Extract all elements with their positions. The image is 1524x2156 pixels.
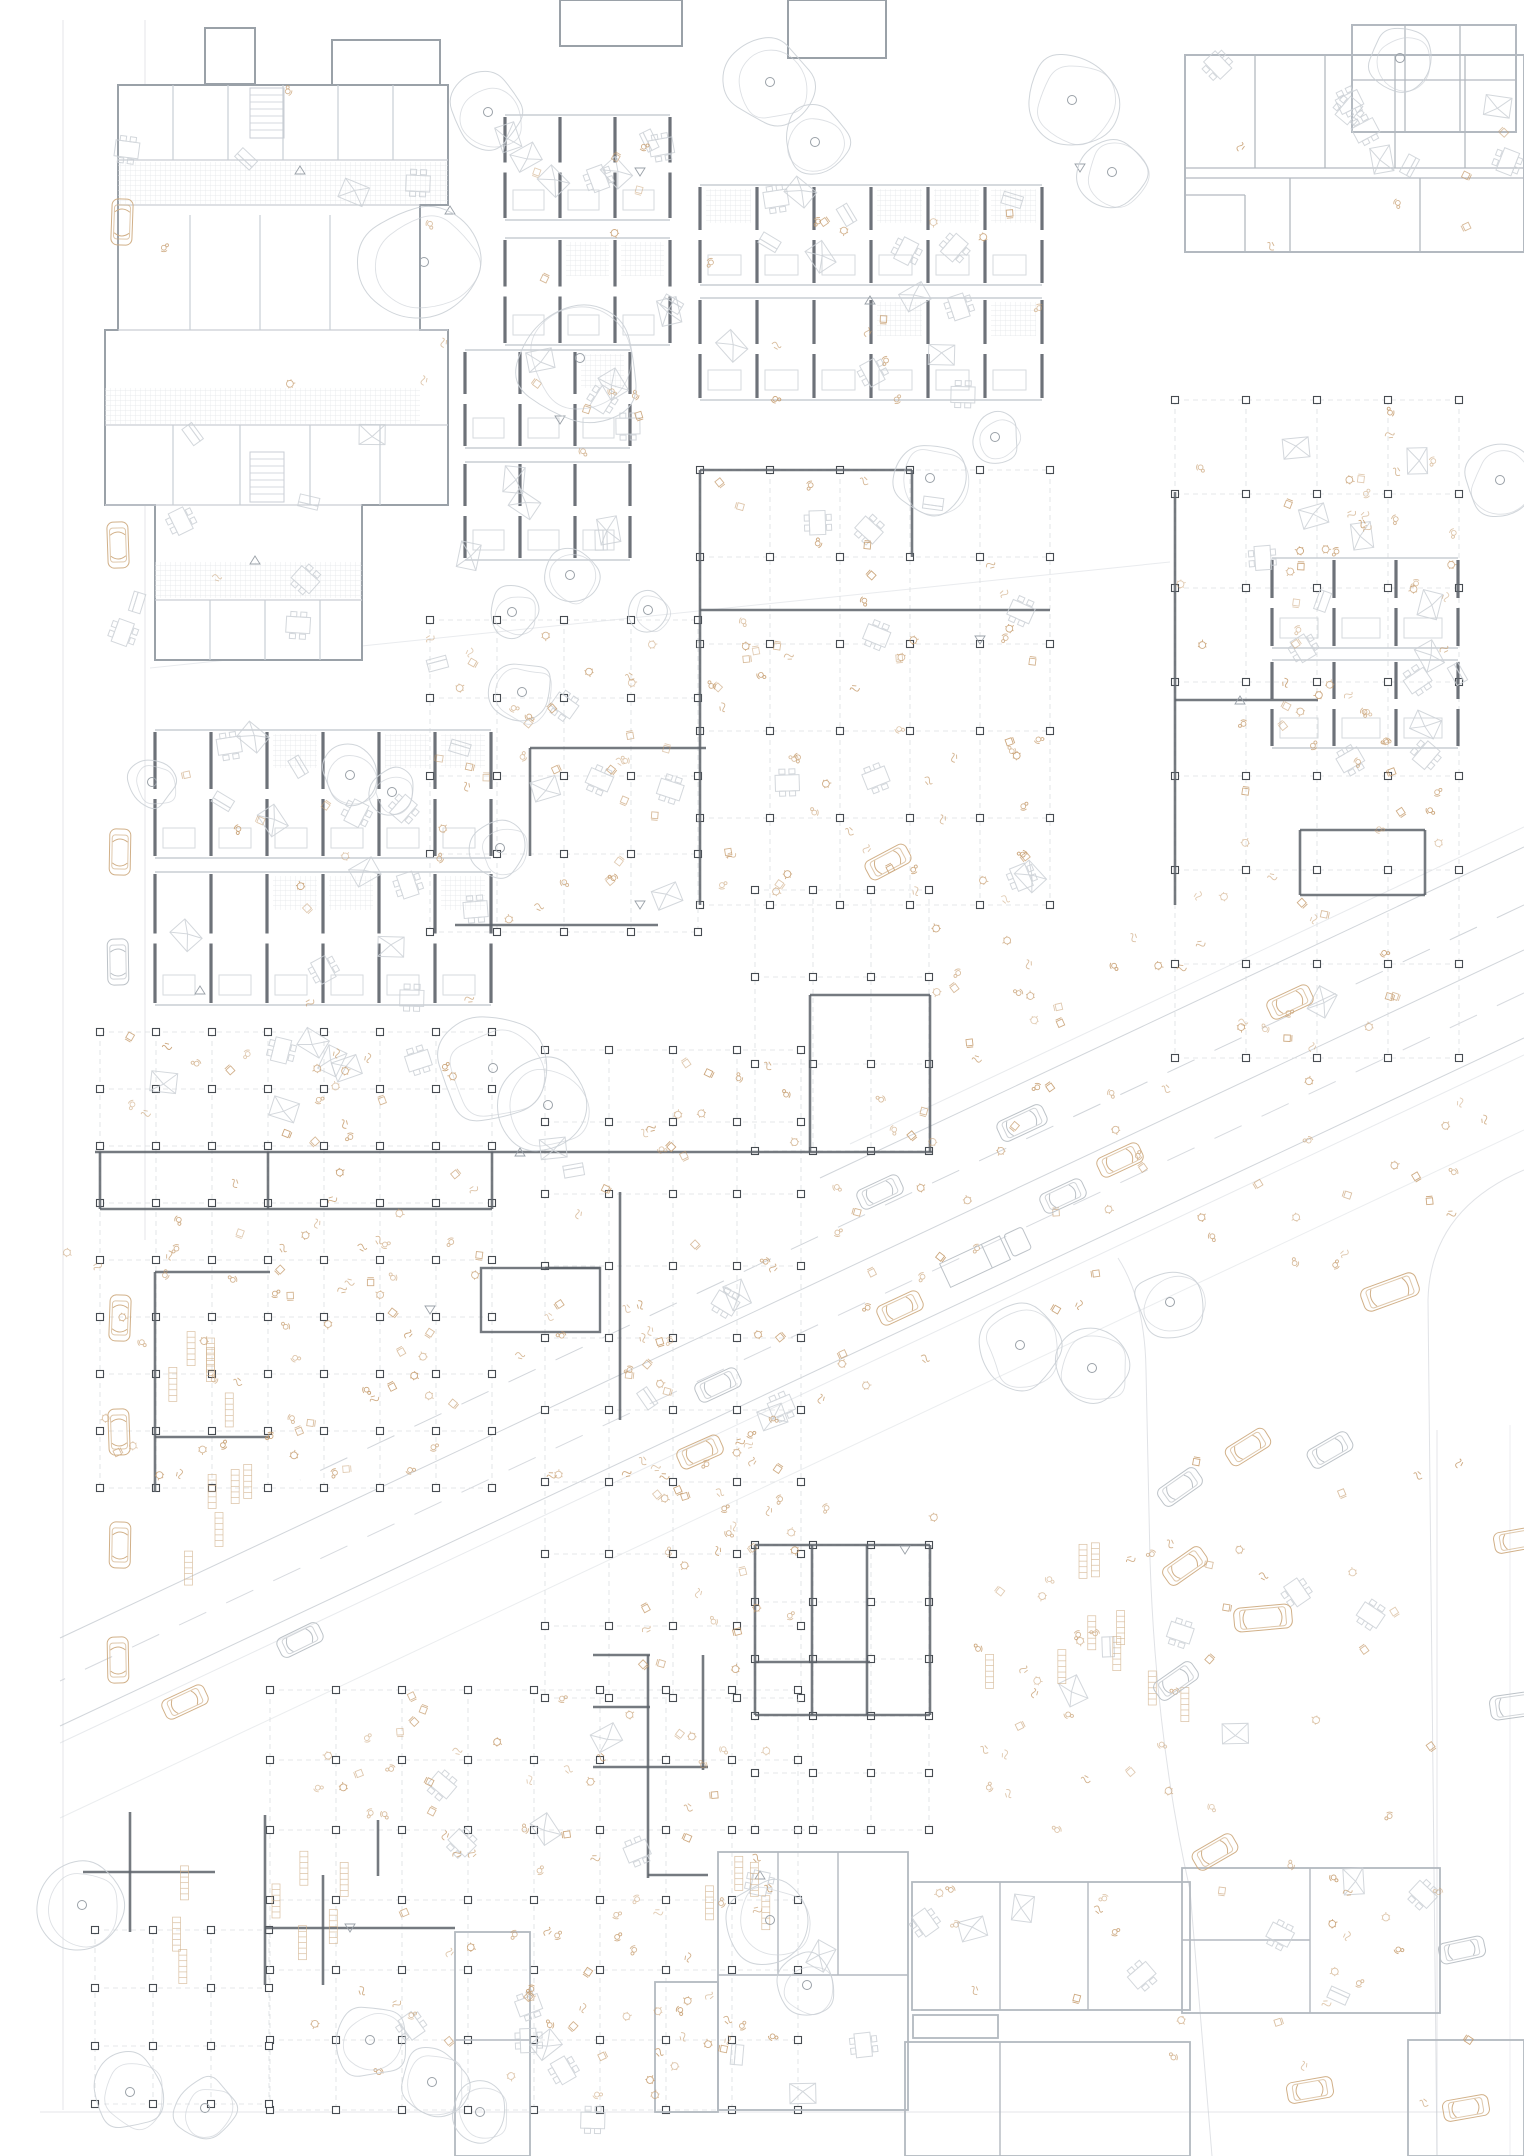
tree-canopy <box>402 2047 471 2116</box>
beige-mark <box>409 1370 421 1382</box>
beige-mark <box>191 1057 202 1068</box>
furniture-mark <box>539 1137 567 1160</box>
beige-mark <box>427 1806 436 1816</box>
beige-mark <box>543 1926 552 1937</box>
beige-mark <box>1169 2052 1177 2061</box>
bed-furniture <box>623 315 654 335</box>
furniture-mark <box>526 348 555 373</box>
beige-mark <box>1359 1644 1369 1654</box>
beige-mark <box>663 1387 672 1395</box>
road-line <box>850 827 1524 1144</box>
beige-mark <box>1440 1119 1452 1131</box>
beige-mark <box>1442 592 1449 602</box>
furniture-mark <box>855 356 890 390</box>
car <box>1437 1935 1486 1965</box>
beige-mark <box>1343 690 1354 702</box>
column-square <box>795 1757 802 1764</box>
column-square <box>209 1029 216 1036</box>
beige-mark <box>562 1831 571 1838</box>
furniture-mark <box>530 775 561 802</box>
column-square <box>265 1257 272 1264</box>
beige-mark <box>1176 2015 1188 2027</box>
beige-mark <box>622 2011 633 2021</box>
beige-mark <box>949 752 959 763</box>
beige-mark <box>1448 560 1457 569</box>
beige-mark <box>1322 545 1331 553</box>
column-square <box>1243 397 1250 404</box>
tree-canopy <box>491 585 539 638</box>
beige-mark <box>1456 1097 1465 1108</box>
gray-furniture-scatter <box>1286 590 1468 739</box>
car <box>1493 1526 1524 1555</box>
tree-canopy-inner <box>637 596 671 632</box>
tree <box>1029 54 1120 145</box>
beige-mark <box>310 1063 322 1075</box>
column-square <box>767 554 774 561</box>
beige-mark <box>1292 625 1302 635</box>
column-square <box>494 773 501 780</box>
bed-furniture <box>822 370 855 390</box>
column-square <box>399 1827 406 1834</box>
beige-mark <box>682 1833 692 1842</box>
beige-mark <box>1223 1604 1232 1612</box>
hatched-terrace <box>581 354 624 388</box>
beige-mark <box>1426 1196 1433 1205</box>
beige-mark <box>788 753 799 764</box>
column-square <box>92 1927 99 1934</box>
column-square <box>1385 867 1392 874</box>
tree <box>545 548 601 603</box>
beige-mark <box>584 1775 596 1787</box>
beige-mark <box>1242 786 1249 795</box>
furniture-mark <box>928 344 955 365</box>
beige-mark <box>859 596 869 606</box>
beige-mark <box>781 869 792 881</box>
column-square <box>333 1897 340 1904</box>
tree-trunk <box>508 608 517 617</box>
beige-mark <box>448 1399 458 1409</box>
shelf-strips <box>173 1866 189 1984</box>
column-square <box>606 1119 613 1126</box>
tree-trunk <box>1068 96 1077 105</box>
column-square <box>628 929 635 936</box>
column-square <box>752 1061 759 1068</box>
column-square <box>542 1479 549 1486</box>
beige-mark <box>99 1413 110 1424</box>
column-square <box>606 1479 613 1486</box>
beige-mark <box>417 1350 428 1361</box>
beige-mark <box>340 850 352 862</box>
column-square <box>837 902 844 909</box>
beige-mark <box>709 1616 718 1625</box>
column-square <box>1314 1055 1321 1062</box>
beige-mark <box>1426 1742 1436 1752</box>
column-square <box>150 1985 157 1992</box>
tree <box>726 1879 810 1964</box>
beige-mark <box>309 1137 319 1147</box>
beige-mark <box>199 1334 211 1346</box>
walled-room <box>481 1268 600 1332</box>
column-square <box>695 929 702 936</box>
furniture-mark <box>378 936 405 957</box>
column-square <box>153 1257 160 1264</box>
column-square <box>837 641 844 648</box>
tree-canopy <box>545 548 601 601</box>
beige-mark <box>635 1299 646 1311</box>
beige-mark <box>1310 915 1317 925</box>
beige-mark <box>1218 1887 1225 1896</box>
tree-canopy-inner <box>1061 1336 1125 1399</box>
beige-mark <box>748 1456 756 1467</box>
tree <box>94 2052 164 2130</box>
column-square <box>494 929 501 936</box>
beige-mark <box>1003 1788 1014 1800</box>
tree <box>402 2047 471 2116</box>
outline-building <box>1408 2040 1524 2156</box>
tree-canopy-inner <box>1088 143 1149 207</box>
column-square <box>427 617 434 624</box>
beige-mark <box>979 1744 991 1755</box>
beige-mark <box>287 1292 294 1300</box>
beige-mark <box>1193 890 1202 901</box>
column-square <box>752 1827 759 1834</box>
shelf-strip <box>244 1464 252 1498</box>
beige-mark <box>1321 1998 1332 2008</box>
shelf-strip <box>1088 1616 1096 1650</box>
column-square <box>465 1967 472 1974</box>
tree <box>787 104 851 174</box>
column-square <box>209 1143 216 1150</box>
hatched-terrace <box>877 189 922 223</box>
beige-mark <box>768 2032 779 2043</box>
column-square <box>670 1119 677 1126</box>
column-square <box>377 1200 384 1207</box>
furniture-mark <box>1400 154 1420 177</box>
beige-mark <box>387 1381 396 1391</box>
tree-canopy <box>1055 1328 1129 1403</box>
beige-mark <box>1419 2098 1430 2107</box>
beige-mark <box>1032 1083 1041 1092</box>
column-square <box>606 1191 613 1198</box>
road-layer <box>60 827 1524 2156</box>
beige-mark <box>719 2045 728 2053</box>
beige-mark <box>1331 1259 1342 1270</box>
beige-scatter <box>832 1083 1147 1314</box>
beige-mark <box>1328 1918 1339 1929</box>
beige-scatter <box>638 1545 800 1673</box>
beige-mark <box>641 1603 650 1613</box>
column-square <box>531 2107 538 2114</box>
beige-mark <box>534 903 544 910</box>
beige-mark <box>399 1908 409 1917</box>
beige-mark <box>1385 1812 1393 1820</box>
beige-mark <box>1197 464 1205 472</box>
bed-furniture <box>163 975 195 995</box>
beige-mark <box>225 1065 235 1075</box>
column-square <box>1385 679 1392 686</box>
beige-mark <box>867 1267 876 1277</box>
beige-mark <box>822 779 832 789</box>
outline-building <box>1182 1868 1440 2013</box>
tree-canopy-inner <box>980 420 1021 459</box>
column-square <box>542 1191 549 1198</box>
beige-mark <box>381 1240 391 1250</box>
beige-mark <box>712 682 722 692</box>
tree-canopy-inner <box>904 450 969 515</box>
car <box>109 1295 132 1342</box>
beige-mark <box>717 702 727 714</box>
beige-mark <box>675 2006 685 2016</box>
tree-canopy-inner <box>460 88 521 147</box>
shelf-strip <box>169 1367 177 1401</box>
beige-mark <box>837 1357 848 1369</box>
beige-mark <box>1278 720 1288 730</box>
beige-mark <box>1075 1300 1082 1310</box>
beige-mark <box>137 1339 146 1348</box>
column-square <box>810 1770 817 1777</box>
bed-furniture <box>1342 618 1380 638</box>
beige-mark <box>1304 1075 1314 1085</box>
beige-mark <box>1342 1191 1352 1200</box>
column-square <box>377 1371 384 1378</box>
beige-mark <box>675 1729 685 1739</box>
beige-mark <box>1195 939 1207 949</box>
column-square <box>321 1428 328 1435</box>
furniture-mark <box>580 2106 605 2134</box>
gray-furniture-scatter <box>1059 1575 1389 1744</box>
beige-mark <box>1075 1637 1084 1647</box>
architectural-site-plan-drawing <box>0 0 1524 2156</box>
furniture-mark <box>456 541 481 571</box>
beige-mark <box>425 220 435 230</box>
beige-mark <box>343 1466 352 1473</box>
beige-mark <box>345 1133 353 1141</box>
level-marker <box>900 1546 910 1554</box>
column-square <box>542 1119 549 1126</box>
furniture-mark <box>510 142 542 172</box>
beige-mark <box>773 1463 783 1473</box>
beige-mark <box>141 1109 151 1117</box>
bed-furniture <box>163 828 195 848</box>
column-square <box>561 929 568 936</box>
column-square <box>399 1757 406 1764</box>
beige-mark <box>783 652 794 662</box>
column-square <box>489 1428 496 1435</box>
level-marker <box>555 416 565 424</box>
column-square <box>433 1485 440 1492</box>
furniture-mark <box>1199 47 1235 83</box>
car <box>1038 1177 1089 1215</box>
column-square <box>977 554 984 561</box>
column-square <box>208 2101 215 2108</box>
column-square <box>628 851 635 858</box>
column-square <box>670 1047 677 1054</box>
column-square <box>377 1257 384 1264</box>
beige-mark <box>1284 1035 1292 1042</box>
column-square <box>868 1061 875 1068</box>
furniture-mark <box>1282 437 1310 459</box>
beige-mark <box>1479 1114 1489 1126</box>
column-square <box>97 1086 104 1093</box>
beige-mark <box>232 824 243 835</box>
tree-canopy-inner <box>185 2090 232 2138</box>
furniture-mark <box>211 791 234 812</box>
column-square <box>798 1695 805 1702</box>
beige-mark <box>1328 1966 1340 1977</box>
furniture-mark <box>537 165 570 198</box>
beige-mark <box>1281 701 1291 710</box>
column-square <box>97 1314 104 1321</box>
shelf-strips <box>705 1856 769 1929</box>
column-square <box>798 1263 805 1270</box>
column-square <box>670 1695 677 1702</box>
column-square <box>1243 961 1250 968</box>
beige-mark <box>620 796 629 806</box>
furniture-mark <box>1353 1597 1388 1633</box>
beige-mark <box>637 1455 649 1466</box>
beige-mark <box>710 1792 719 1799</box>
column-square <box>663 1967 670 1974</box>
beige-mark <box>446 1237 456 1246</box>
column-square <box>868 1770 875 1777</box>
column-square <box>729 1827 736 1834</box>
column-square <box>433 1314 440 1321</box>
beige-mark <box>1104 1205 1114 1215</box>
tree-trunk <box>388 788 397 797</box>
level-marker <box>1075 164 1085 172</box>
column-square <box>795 2037 802 2044</box>
column-square <box>489 1143 496 1150</box>
column-square <box>489 1371 496 1378</box>
furniture-mark <box>1279 1575 1315 1610</box>
beige-mark <box>362 1386 370 1395</box>
beige-mark <box>972 1055 982 1062</box>
beige-mark <box>1063 1710 1074 1721</box>
beige-mark <box>920 1107 928 1116</box>
beige-mark <box>909 865 919 875</box>
bed-furniture <box>331 975 363 995</box>
beige-mark <box>862 844 871 855</box>
column-square <box>265 1143 272 1150</box>
bed-furniture <box>528 530 559 550</box>
column-square <box>1314 491 1321 498</box>
tree <box>1465 444 1524 516</box>
beige-mark <box>335 1166 347 1178</box>
beige-mark <box>232 1377 243 1387</box>
tree <box>777 1952 834 2015</box>
beige-mark <box>739 1566 747 1575</box>
column-square <box>97 1428 104 1435</box>
beige-mark <box>1393 1945 1404 1956</box>
beige-mark <box>612 1911 621 1920</box>
tree-trunk <box>811 138 820 147</box>
tree-trunk <box>1496 476 1505 485</box>
beige-mark <box>1026 990 1035 999</box>
beige-mark <box>290 1353 301 1364</box>
beige-mark <box>719 1746 727 1754</box>
beige-mark <box>281 1321 290 1330</box>
beige-mark <box>1329 1874 1338 1883</box>
road-line <box>60 1055 1524 1743</box>
car <box>675 1433 726 1471</box>
furniture-mark <box>1410 710 1442 739</box>
column-square <box>628 695 635 702</box>
beige-mark <box>752 646 760 655</box>
tree <box>1368 28 1431 92</box>
furniture-mark <box>1333 84 1366 119</box>
column-square <box>494 695 501 702</box>
beige-mark <box>1004 622 1016 634</box>
tree-trunk <box>1088 1364 1097 1373</box>
column-square <box>1385 491 1392 498</box>
furniture-mark <box>889 235 924 269</box>
column-square <box>734 1047 741 1054</box>
car <box>1160 1544 1210 1588</box>
column-square <box>153 1143 160 1150</box>
shelf-strip <box>215 1512 223 1546</box>
tree-canopy <box>973 411 1017 463</box>
column-square <box>798 1623 805 1630</box>
beige-mark <box>518 751 529 762</box>
tree-canopy-inner <box>1038 66 1116 145</box>
column-square <box>767 641 774 648</box>
shelf-strip <box>1091 1543 1099 1577</box>
shelf-strip <box>986 1654 994 1688</box>
furniture-mark <box>651 882 683 910</box>
column-square <box>734 1335 741 1342</box>
beige-scatter <box>1196 1075 1489 1270</box>
column-square <box>209 1428 216 1435</box>
beige-mark <box>563 1765 574 1774</box>
furniture-mark <box>426 655 448 672</box>
beige-mark <box>1295 707 1305 718</box>
furniture-mark <box>708 1285 743 1321</box>
tree-trunk <box>926 474 935 483</box>
beige-mark <box>1294 546 1305 556</box>
column-square <box>153 1029 160 1036</box>
shelf-strips <box>272 1851 348 1959</box>
column-square <box>150 1927 157 1934</box>
beige-mark <box>1093 1905 1104 1914</box>
shelf-strips <box>169 1332 252 1586</box>
tree <box>973 411 1021 463</box>
furniture-mark <box>1124 1958 1160 1994</box>
column-square <box>926 887 933 894</box>
tree <box>491 585 539 638</box>
beige-mark <box>1455 1458 1463 1468</box>
beige-mark <box>1253 1179 1263 1189</box>
beige-mark <box>326 1194 338 1205</box>
beige-mark <box>792 753 803 764</box>
car <box>275 1620 326 1659</box>
beige-mark <box>462 781 473 793</box>
beige-mark <box>1320 911 1329 919</box>
beige-mark <box>397 1728 404 1736</box>
tree-canopy-inner <box>48 1874 117 1947</box>
column-square <box>810 974 817 981</box>
hatched-terrace <box>991 302 1036 336</box>
furniture-mark <box>804 510 832 535</box>
beige-mark <box>282 1129 292 1138</box>
beige-mark <box>1236 141 1245 152</box>
bed-furniture <box>443 975 475 995</box>
furniture-mark <box>392 869 425 900</box>
furniture-mark <box>530 2029 563 2061</box>
beige-mark <box>295 1426 304 1436</box>
beige-mark <box>607 765 617 775</box>
column-grid <box>752 1542 933 1834</box>
beige-mark <box>396 1346 406 1356</box>
